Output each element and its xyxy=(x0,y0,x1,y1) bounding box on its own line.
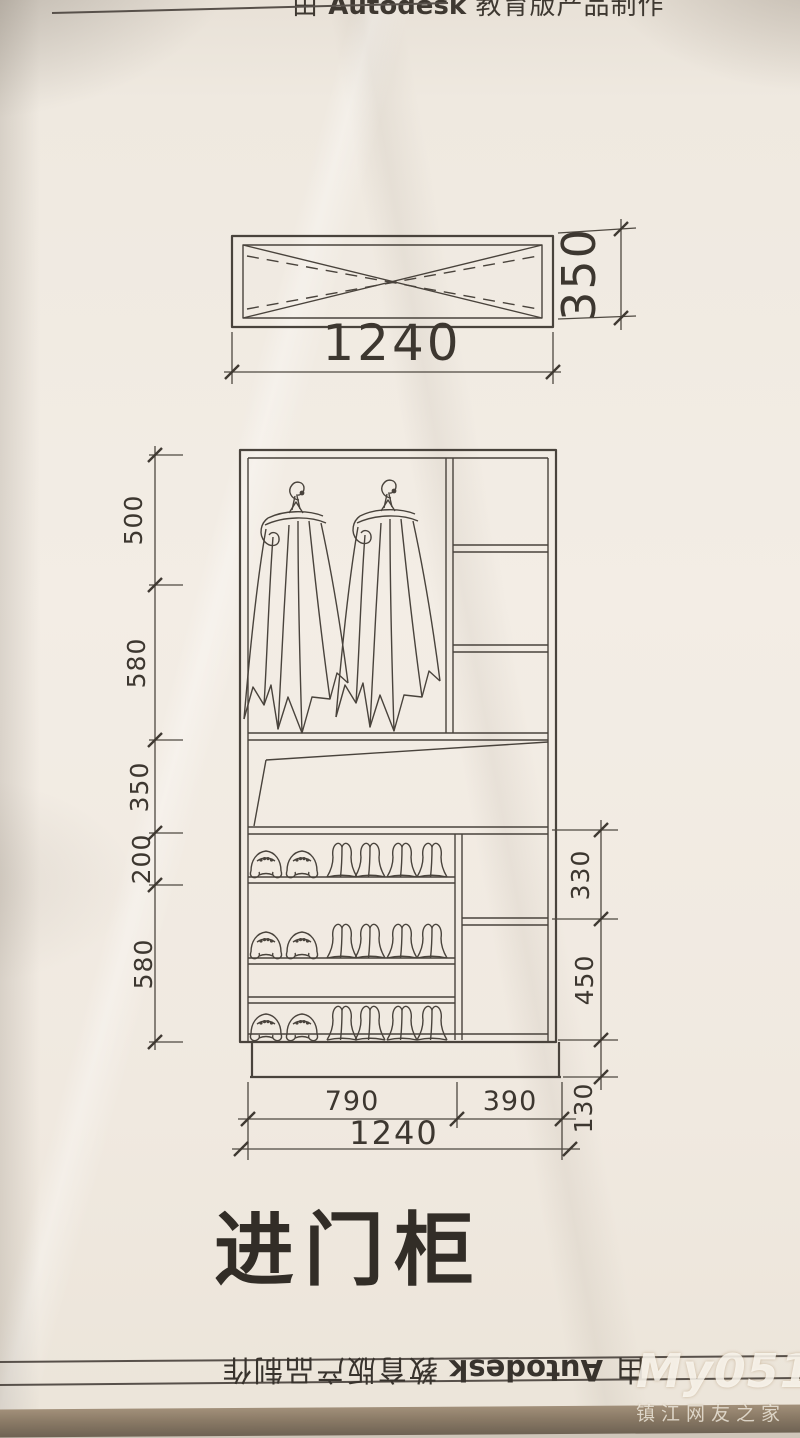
dim-label-left-1: 500 xyxy=(119,495,148,546)
dim-label-bottom-2: 390 xyxy=(483,1086,538,1117)
dim-chain-bottom: 790 390 1240 xyxy=(232,1082,580,1160)
photo-paper-background: 由 Autodesk 教育版产品制作 xyxy=(0,0,800,1422)
dim-label-top-width: 1240 xyxy=(322,314,461,372)
cross-door-symbol xyxy=(243,245,542,318)
garment-right xyxy=(336,480,440,731)
dim-label-left-2: 580 xyxy=(122,638,151,689)
drawing-title: 进门柜 xyxy=(214,1186,484,1302)
dim-label-left-5: 580 xyxy=(129,939,158,990)
plinth xyxy=(250,1042,561,1077)
dim-label-plinth: 130 xyxy=(569,1083,598,1134)
dim-label-total-width: 1240 xyxy=(349,1114,438,1152)
dim-label-right-1: 330 xyxy=(566,850,595,901)
shoes-drawing xyxy=(250,843,447,1040)
dim-label-left-3: 350 xyxy=(125,762,154,813)
dim-chain-left: 500 580 350 200 580 xyxy=(119,446,183,1050)
site-watermark: My0511.COM 镇江网友之家 xyxy=(636,1344,800,1426)
hanging-clothes-drawing xyxy=(244,480,440,733)
sheet-border-top xyxy=(52,3,448,13)
autodesk-educational-watermark-bottom: 由 Autodesk 教育版产品制作 xyxy=(178,1351,688,1393)
dim-top-height: 350 xyxy=(552,219,636,330)
dim-label-top-height: 350 xyxy=(552,227,606,321)
autodesk-brand-text: Autodesk xyxy=(449,1353,603,1387)
watermark-suffix: 教育版产品制作 xyxy=(221,1353,449,1387)
dim-label-left-4: 200 xyxy=(127,834,156,885)
site-watermark-logo: My0511 xyxy=(636,1344,800,1398)
sloped-panel xyxy=(254,742,548,826)
dim-top-width: 1240 xyxy=(224,314,561,384)
dim-label-right-2: 450 xyxy=(570,955,599,1006)
dim-label-bottom-1: 790 xyxy=(325,1086,380,1117)
garment-left xyxy=(244,482,348,733)
